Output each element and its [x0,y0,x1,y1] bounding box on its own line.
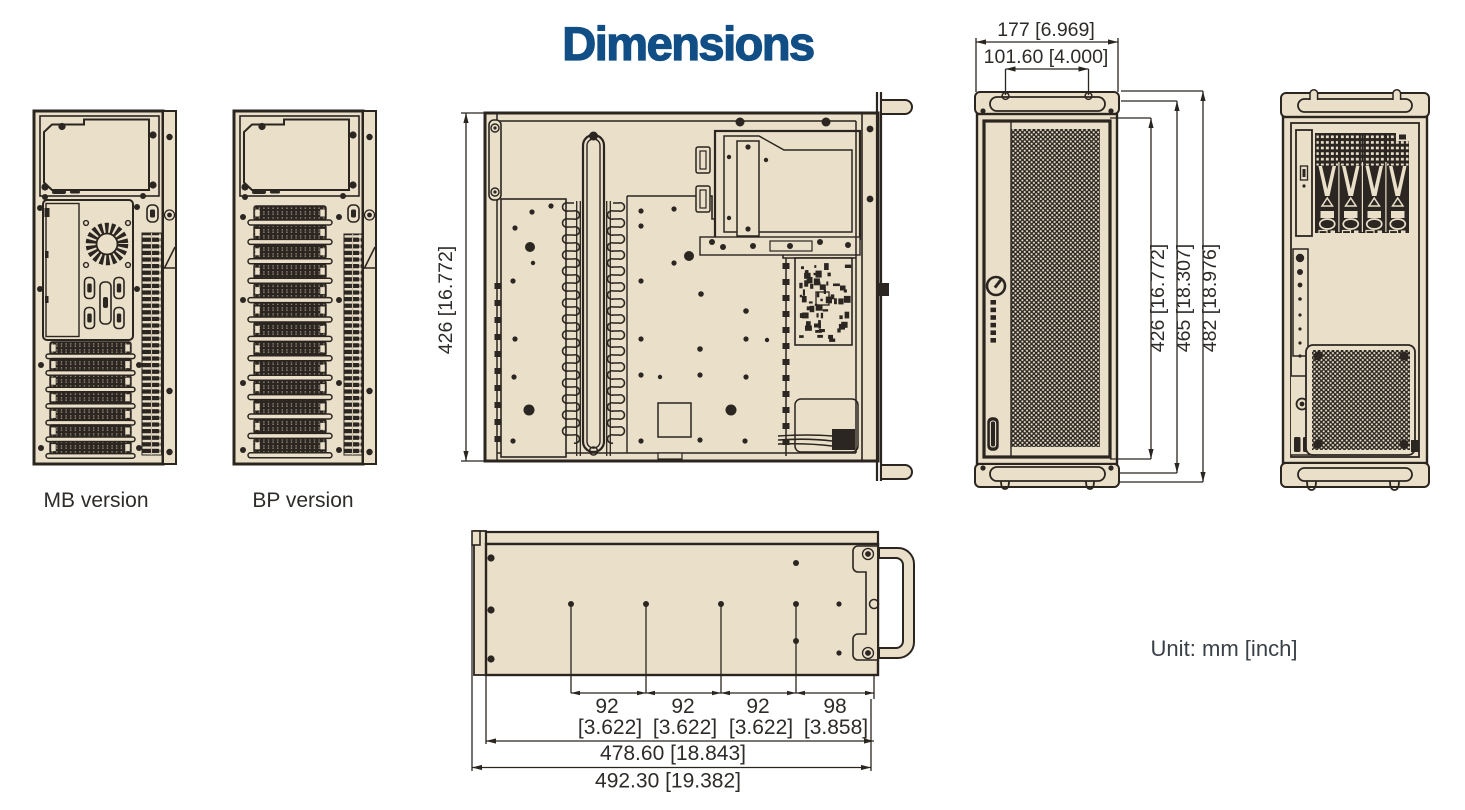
svg-text:[3.622]: [3.622] [578,716,642,739]
svg-text:177 [6.969]: 177 [6.969] [997,19,1095,41]
svg-text:492.30 [19.382]: 492.30 [19.382] [595,770,741,793]
svg-text:92: 92 [595,695,618,718]
svg-text:98: 98 [823,695,846,718]
svg-text:MB version: MB version [43,489,148,512]
svg-text:Unit: mm [inch]: Unit: mm [inch] [1151,636,1298,661]
svg-text:101.60 [4.000]: 101.60 [4.000] [984,46,1109,68]
svg-text:92: 92 [746,695,769,718]
svg-text:[3.858]: [3.858] [804,716,868,739]
svg-text:92: 92 [671,695,694,718]
svg-text:426 [16.772]: 426 [16.772] [435,246,457,354]
svg-text:[3.622]: [3.622] [729,716,793,739]
svg-text:[3.622]: [3.622] [653,716,717,739]
svg-text:426 [16.772]: 426 [16.772] [1147,244,1169,352]
svg-text:465 [18.307]: 465 [18.307] [1173,244,1195,352]
svg-text:482 [18.976]: 482 [18.976] [1199,244,1221,352]
svg-text:478.60 [18.843]: 478.60 [18.843] [600,742,746,765]
svg-text:Dimensions: Dimensions [562,17,814,70]
svg-text:BP version: BP version [252,489,353,512]
